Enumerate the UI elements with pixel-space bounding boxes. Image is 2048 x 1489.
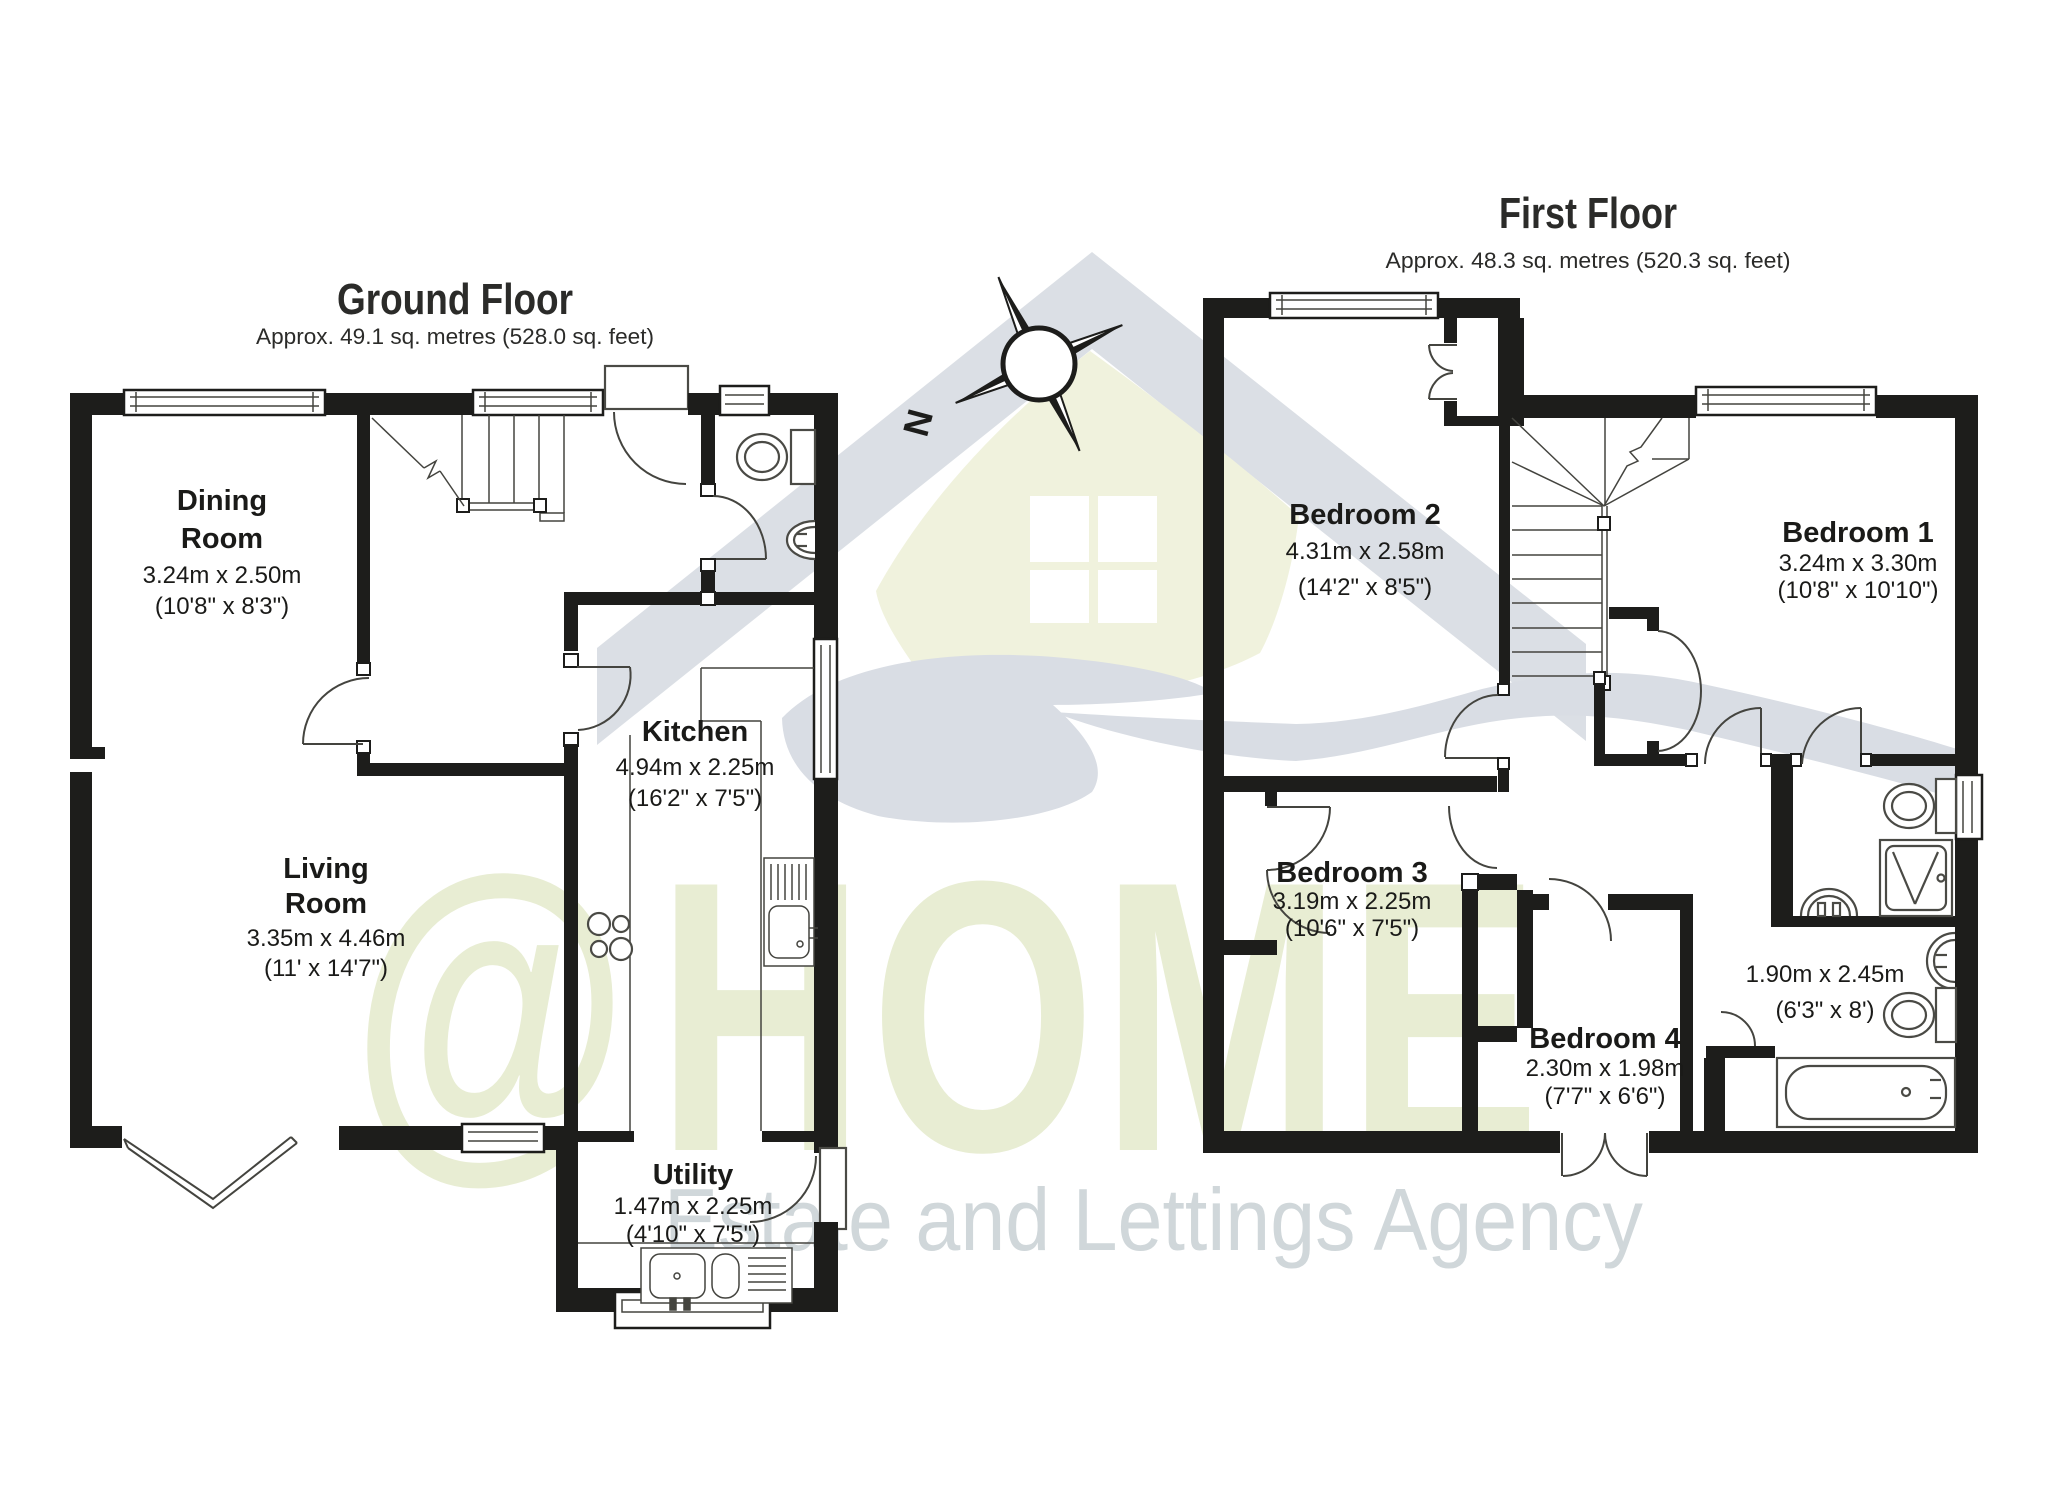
svg-text:Utility: Utility xyxy=(653,1159,734,1191)
svg-text:4.31m x 2.58m: 4.31m x 2.58m xyxy=(1286,538,1445,565)
svg-text:First Floor: First Floor xyxy=(1499,189,1677,238)
svg-text:Ground Floor: Ground Floor xyxy=(337,275,573,324)
svg-text:Approx. 49.1 sq. metres (528.0: Approx. 49.1 sq. metres (528.0 sq. feet) xyxy=(256,324,654,349)
svg-text:Bedroom 3: Bedroom 3 xyxy=(1276,857,1427,889)
svg-text:Bedroom 2: Bedroom 2 xyxy=(1289,499,1440,531)
svg-text:3.24m x 3.30m: 3.24m x 3.30m xyxy=(1779,550,1938,577)
svg-text:Living: Living xyxy=(283,853,368,885)
svg-text:Estate and Lettings Agency: Estate and Lettings Agency xyxy=(664,1171,1644,1269)
svg-text:Room: Room xyxy=(181,523,263,555)
svg-text:Bedroom 1: Bedroom 1 xyxy=(1782,517,1933,549)
svg-text:(6'3" x 8'): (6'3" x 8') xyxy=(1775,997,1874,1024)
svg-text:3.24m x 2.50m: 3.24m x 2.50m xyxy=(143,562,302,589)
svg-text:1.47m x 2.25m: 1.47m x 2.25m xyxy=(614,1193,773,1220)
svg-text:(16'2" x 7'5"): (16'2" x 7'5") xyxy=(628,785,762,812)
svg-text:(14'2" x 8'5"): (14'2" x 8'5") xyxy=(1298,574,1432,601)
svg-text:Approx. 48.3 sq. metres (520.3: Approx. 48.3 sq. metres (520.3 sq. feet) xyxy=(1386,248,1791,273)
svg-text:(7'7" x 6'6"): (7'7" x 6'6") xyxy=(1545,1083,1666,1110)
svg-text:(10'6" x 7'5"): (10'6" x 7'5") xyxy=(1285,915,1419,942)
svg-text:Kitchen: Kitchen xyxy=(642,716,748,748)
svg-text:Room: Room xyxy=(285,888,367,920)
svg-text:(10'8" x 10'10"): (10'8" x 10'10") xyxy=(1778,577,1939,604)
svg-text:(11' x 14'7"): (11' x 14'7") xyxy=(264,955,388,982)
svg-text:4.94m x 2.25m: 4.94m x 2.25m xyxy=(616,754,775,781)
svg-text:Bedroom 4: Bedroom 4 xyxy=(1529,1023,1680,1055)
svg-text:3.19m x 2.25m: 3.19m x 2.25m xyxy=(1273,888,1432,915)
svg-text:Dining: Dining xyxy=(177,485,267,517)
svg-text:3.35m x 4.46m: 3.35m x 4.46m xyxy=(247,925,406,952)
svg-text:(4'10" x 7'5"): (4'10" x 7'5") xyxy=(626,1221,760,1248)
svg-text:2.30m x 1.98m: 2.30m x 1.98m xyxy=(1526,1055,1685,1082)
svg-text:(10'8" x 8'3"): (10'8" x 8'3") xyxy=(155,593,289,620)
svg-text:1.90m x 2.45m: 1.90m x 2.45m xyxy=(1746,961,1905,988)
